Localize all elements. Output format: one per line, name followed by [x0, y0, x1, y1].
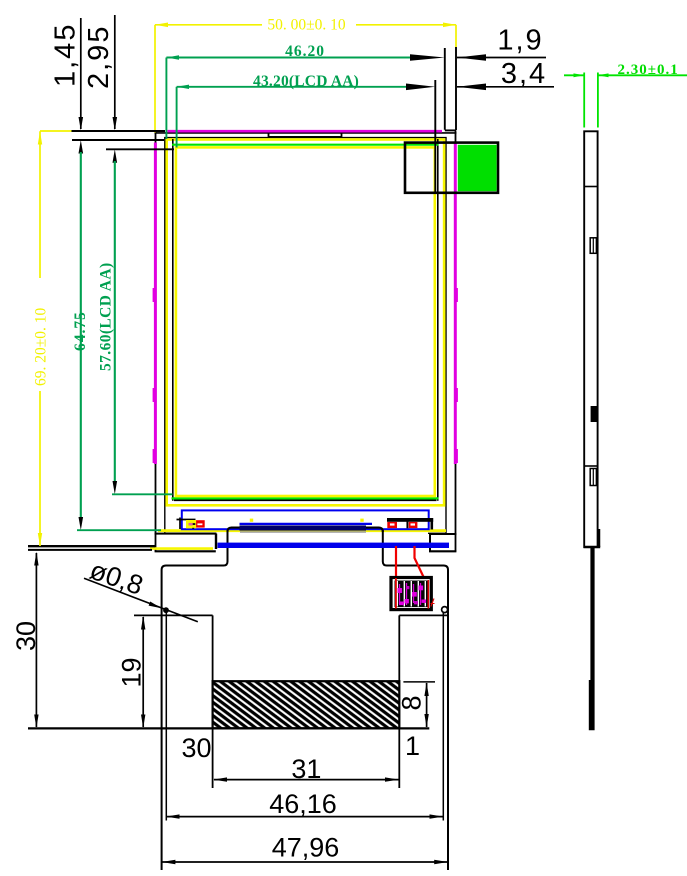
svg-text:30: 30	[11, 621, 41, 651]
svg-text:2.30±0.1: 2.30±0.1	[618, 62, 679, 78]
svg-text:69. 20±0. 10: 69. 20±0. 10	[33, 307, 50, 386]
svg-text:64.75: 64.75	[72, 311, 89, 351]
svg-text:47,96: 47,96	[272, 833, 340, 863]
svg-text:19: 19	[117, 657, 147, 687]
svg-text:31: 31	[291, 754, 321, 784]
svg-text:1,45: 1,45	[50, 23, 82, 87]
svg-text:2,95: 2,95	[83, 25, 115, 89]
svg-text:1: 1	[405, 731, 420, 761]
svg-text:50. 00±0. 10: 50. 00±0. 10	[267, 17, 346, 34]
svg-text:43.20(LCD AA): 43.20(LCD AA)	[253, 73, 359, 90]
svg-text:1,9: 1,9	[497, 25, 543, 57]
svg-text:57.60(LCD AA): 57.60(LCD AA)	[97, 262, 114, 371]
svg-text:46,16: 46,16	[269, 789, 337, 819]
svg-text:8: 8	[397, 695, 427, 710]
svg-text:30: 30	[181, 733, 211, 763]
svg-text:3,4: 3,4	[501, 58, 547, 90]
svg-text:46.20: 46.20	[285, 43, 325, 60]
